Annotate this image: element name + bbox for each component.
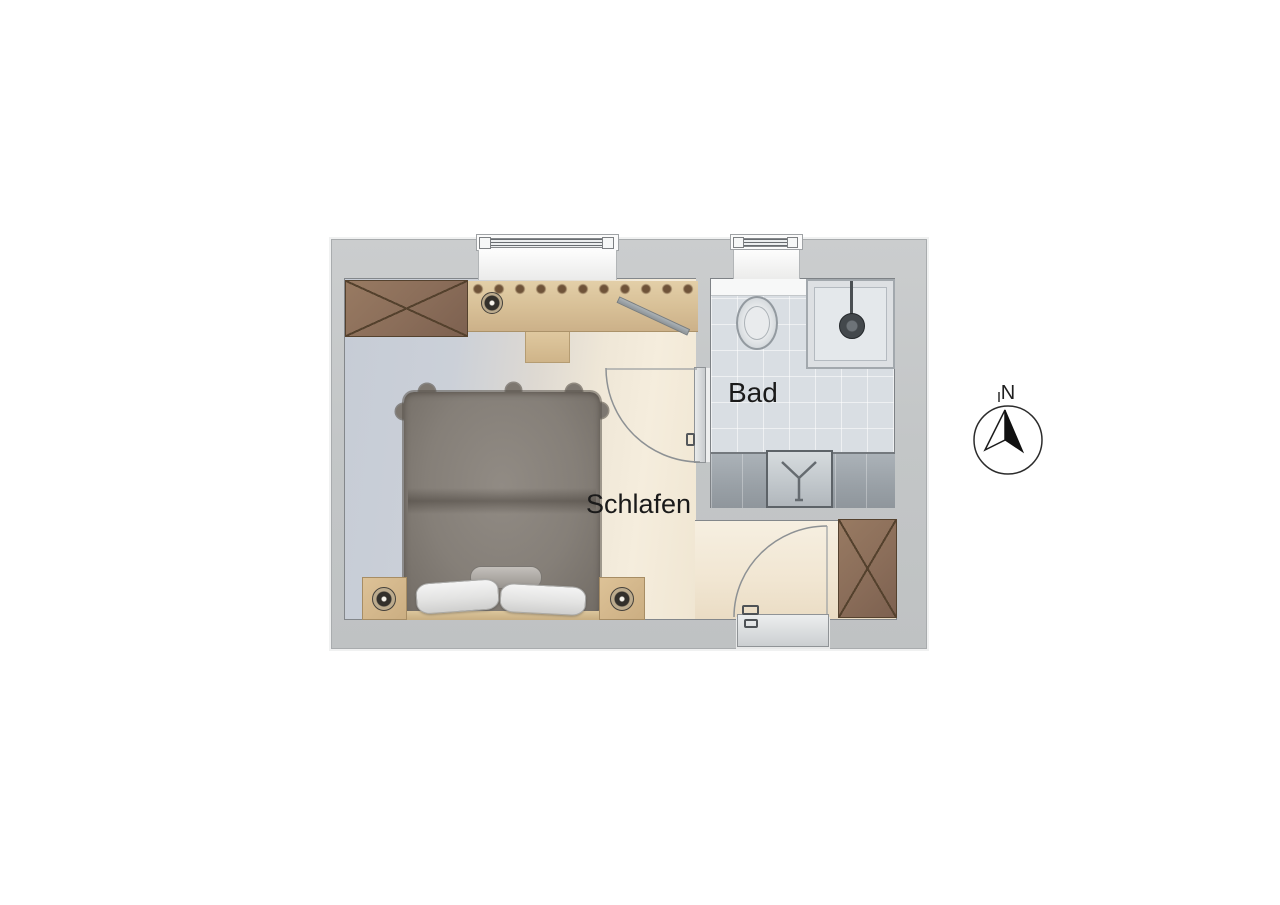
desk-lamp: [481, 292, 503, 314]
shower-head: [839, 313, 865, 339]
nightstand-left-lamp: [372, 587, 396, 611]
nightstand-right-lamp: [610, 587, 634, 611]
bathroom-door-handle: [686, 433, 695, 446]
window-bedroom-post-right: [602, 237, 614, 249]
wardrobe-bottom-right: [838, 519, 897, 618]
floorplan-canvas: Schlafen Bad N: [0, 0, 1280, 905]
window-bathroom-glazing: [742, 238, 792, 247]
window-bathroom-sill: [733, 250, 800, 280]
wardrobe-top-left: [345, 280, 468, 337]
pillow-right: [499, 583, 586, 616]
window-bathroom-post-right: [787, 237, 798, 248]
compass-north-label: N: [971, 382, 1045, 405]
bath-shelf: [711, 279, 806, 296]
window-bedroom-post-left: [479, 237, 491, 249]
window-bathroom-post-left: [733, 237, 744, 248]
entry-door-handle: [742, 605, 759, 615]
pillow-left: [415, 578, 500, 615]
compass: N: [971, 384, 1045, 480]
desk-knob-rail: [468, 281, 698, 296]
entry-door-handle-plate: [744, 619, 758, 628]
sink: [766, 450, 833, 508]
window-bedroom-sill: [478, 250, 617, 280]
room-label-schlafen: Schlafen: [586, 489, 691, 520]
room-label-bad: Bad: [728, 377, 778, 409]
window-bedroom-glazing: [489, 238, 607, 248]
bathroom-door: [694, 367, 706, 463]
duvet-fold: [408, 488, 596, 514]
toilet-bowl: [744, 306, 770, 340]
stool: [525, 332, 570, 363]
